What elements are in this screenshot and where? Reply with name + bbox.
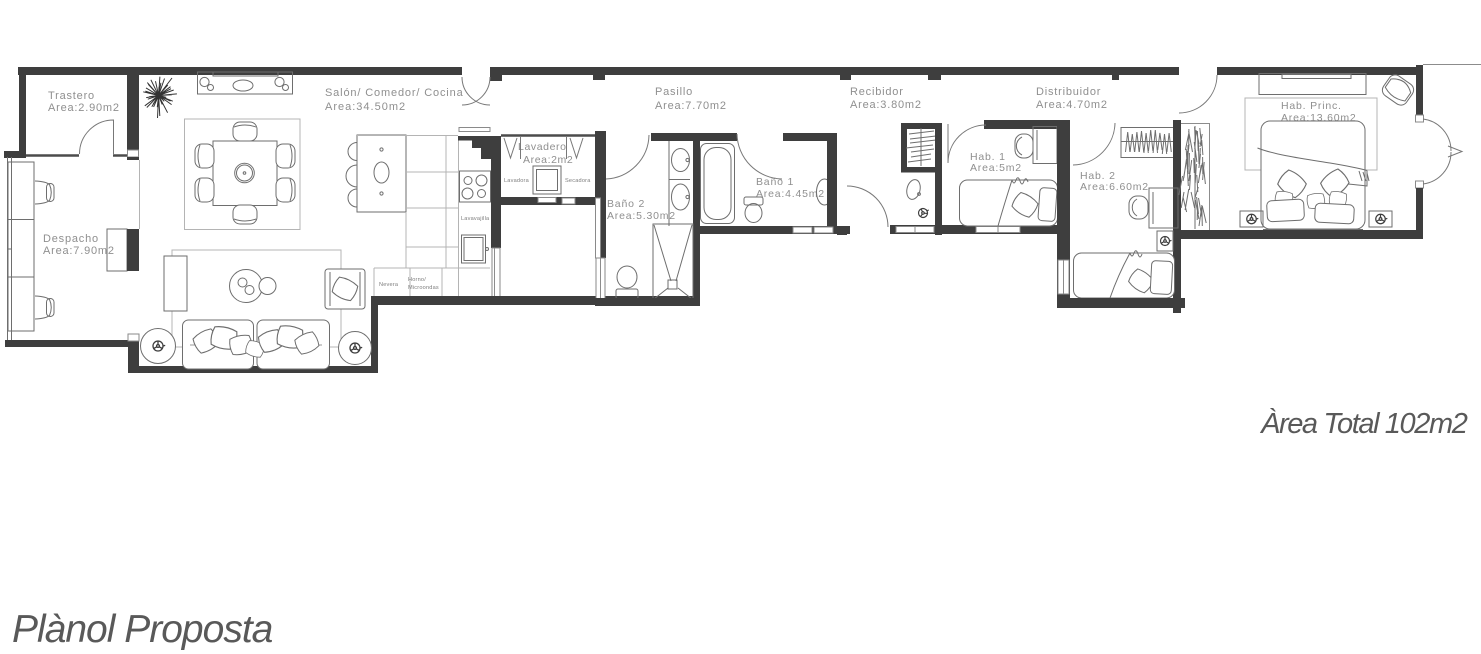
svg-text:Hab. Princ.: Hab. Princ. — [1281, 100, 1342, 112]
svg-text:Area:6.60m2: Area:6.60m2 — [1080, 181, 1149, 193]
svg-text:Lavadero: Lavadero — [518, 141, 567, 153]
svg-text:Salón/ Comedor/ Cocina: Salón/ Comedor/ Cocina — [325, 87, 464, 99]
svg-text:Plànol Proposta: Plànol Proposta — [12, 608, 273, 651]
svg-text:Area:3.80m2: Area:3.80m2 — [850, 99, 922, 111]
svg-text:Horno/: Horno/ — [408, 277, 426, 283]
svg-text:Àrea Total 102m2: Àrea Total 102m2 — [1259, 407, 1468, 440]
svg-text:Area:5.30m2: Area:5.30m2 — [607, 210, 676, 222]
svg-text:Baño 2: Baño 2 — [607, 198, 645, 210]
svg-text:Area:4.45m2: Area:4.45m2 — [756, 188, 825, 200]
svg-text:Area:7.70m2: Area:7.70m2 — [655, 100, 727, 112]
svg-text:Area:34.50m2: Area:34.50m2 — [325, 101, 406, 113]
svg-text:Despacho: Despacho — [43, 233, 99, 245]
svg-text:Secadora: Secadora — [565, 178, 591, 184]
svg-text:Trastero: Trastero — [48, 90, 95, 102]
svg-text:Microondas: Microondas — [408, 285, 439, 291]
svg-text:Lavadora: Lavadora — [504, 178, 530, 184]
svg-text:Area:4.70m2: Area:4.70m2 — [1036, 99, 1108, 111]
svg-text:Lavavajilla: Lavavajilla — [461, 216, 490, 222]
svg-text:Area:2.90m2: Area:2.90m2 — [48, 102, 120, 114]
svg-text:Area:5m2: Area:5m2 — [970, 162, 1022, 174]
svg-text:Distribuidor: Distribuidor — [1036, 86, 1101, 98]
svg-text:Nevera: Nevera — [379, 282, 399, 288]
svg-text:Area:7.90m2: Area:7.90m2 — [43, 245, 115, 257]
svg-text:Recibidor: Recibidor — [850, 86, 904, 98]
svg-text:Baño 1: Baño 1 — [756, 176, 794, 188]
svg-text:Pasillo: Pasillo — [655, 86, 693, 98]
svg-text:Area:2m2: Area:2m2 — [523, 154, 573, 166]
